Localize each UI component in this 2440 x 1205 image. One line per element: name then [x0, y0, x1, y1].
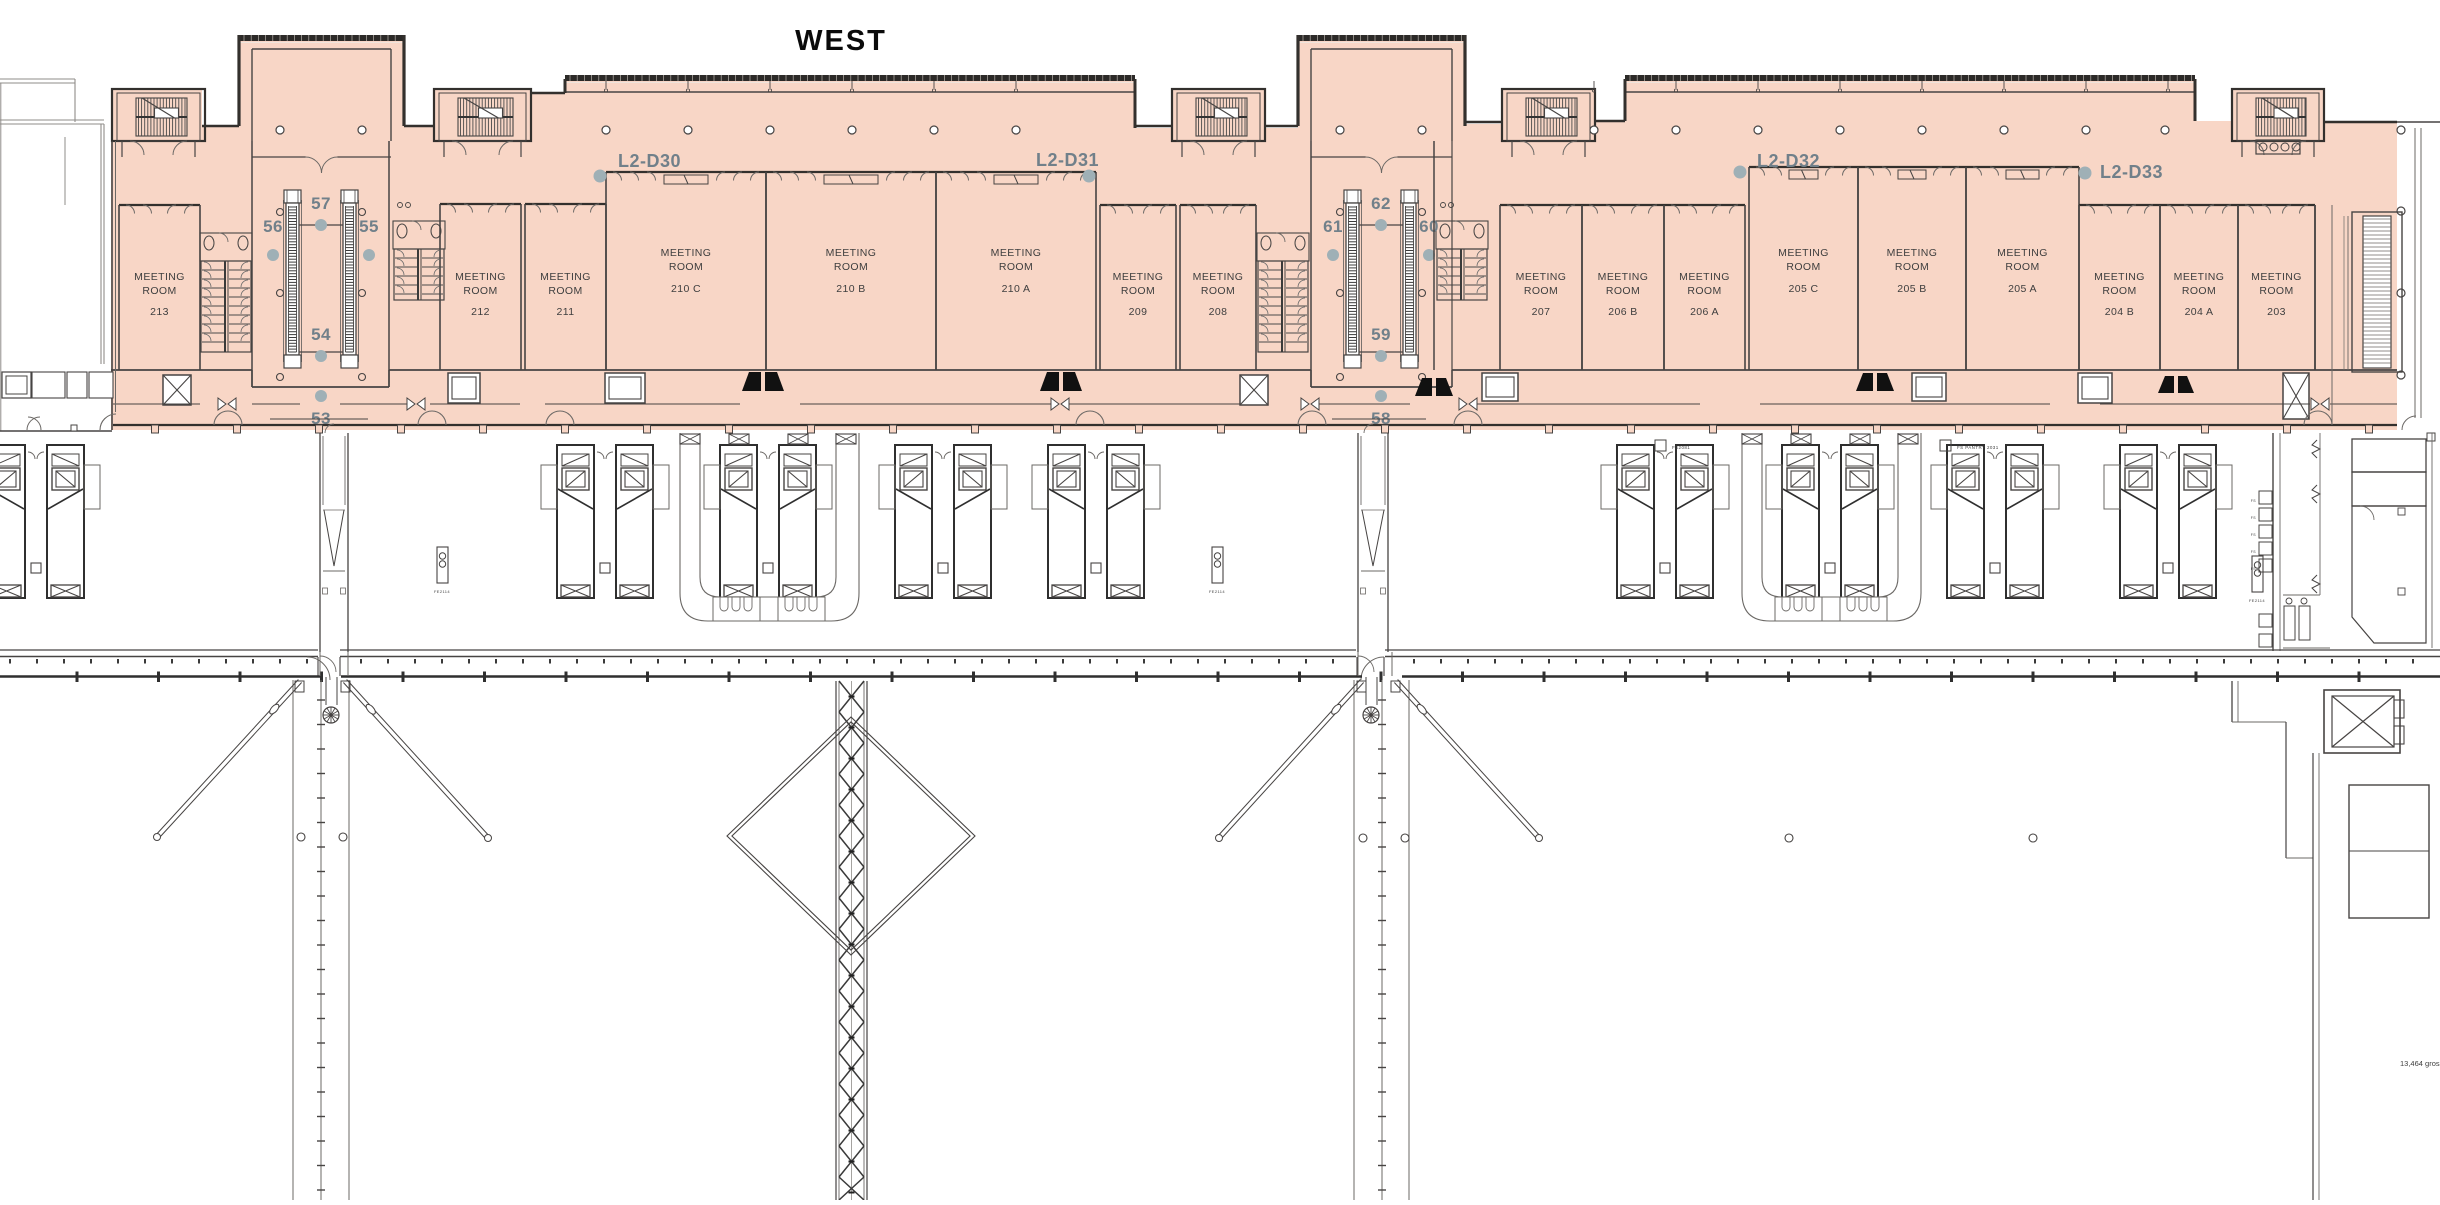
svg-text:MEETING: MEETING: [1516, 271, 1567, 283]
svg-text:MEETING: MEETING: [1598, 271, 1649, 283]
svg-text:ROOM: ROOM: [142, 285, 176, 297]
svg-text:FS: FS: [2251, 550, 2257, 554]
svg-text:MEETING: MEETING: [2094, 271, 2145, 283]
svg-text:213: 213: [150, 306, 169, 318]
svg-text:ROOM: ROOM: [1201, 285, 1235, 297]
svg-text:204 B: 204 B: [2105, 306, 2134, 318]
svg-text:ROOM: ROOM: [2102, 285, 2136, 297]
svg-text:MEETING: MEETING: [134, 271, 185, 283]
svg-text:203: 203: [2267, 306, 2286, 318]
svg-text:ROOM: ROOM: [463, 285, 497, 297]
svg-text:MEETING: MEETING: [1679, 271, 1730, 283]
svg-text:ROOM: ROOM: [1524, 285, 1558, 297]
svg-text:56: 56: [263, 217, 283, 236]
svg-text:210 B: 210 B: [836, 283, 865, 295]
svg-text:ROOM: ROOM: [1786, 261, 1820, 273]
svg-text:FS: FS: [2251, 533, 2257, 537]
svg-text:205 B: 205 B: [1897, 283, 1926, 295]
svg-text:57: 57: [311, 194, 331, 213]
svg-text:204 A: 204 A: [2185, 306, 2214, 318]
svg-text:ROOM: ROOM: [1687, 285, 1721, 297]
svg-text:MEETING: MEETING: [1997, 247, 2048, 259]
svg-text:206 B: 206 B: [1608, 306, 1637, 318]
svg-text:MEETING: MEETING: [1113, 271, 1164, 283]
svg-text:FS2081: FS2081: [1672, 445, 1690, 450]
svg-text:MEETING: MEETING: [1193, 271, 1244, 283]
svg-text:FE2114: FE2114: [434, 589, 450, 594]
svg-text:55: 55: [359, 217, 379, 236]
svg-text:209: 209: [1129, 306, 1148, 318]
svg-text:59: 59: [1371, 325, 1391, 344]
svg-text:13,464 gross s: 13,464 gross s: [2400, 1059, 2440, 1068]
svg-text:MEETING: MEETING: [1778, 247, 1829, 259]
svg-text:FS PANTRY 2031: FS PANTRY 2031: [1957, 445, 1999, 450]
svg-text:MEETING: MEETING: [2251, 271, 2302, 283]
svg-text:210 A: 210 A: [1002, 283, 1031, 295]
svg-text:ROOM: ROOM: [999, 261, 1033, 273]
svg-text:62: 62: [1371, 194, 1391, 213]
svg-text:ROOM: ROOM: [548, 285, 582, 297]
svg-text:61: 61: [1323, 217, 1343, 236]
svg-text:MEETING: MEETING: [2174, 271, 2225, 283]
svg-text:L2-D31: L2-D31: [1036, 150, 1099, 170]
svg-text:MEETING: MEETING: [1887, 247, 1938, 259]
svg-text:208: 208: [1209, 306, 1228, 318]
svg-text:FS: FS: [2251, 516, 2257, 520]
svg-text:ROOM: ROOM: [2182, 285, 2216, 297]
svg-text:54: 54: [311, 325, 331, 344]
svg-text:ROOM: ROOM: [1121, 285, 1155, 297]
svg-text:FS: FS: [2251, 567, 2257, 571]
svg-text:L2-D30: L2-D30: [618, 151, 681, 171]
svg-text:ROOM: ROOM: [834, 261, 868, 273]
svg-text:207: 207: [1532, 306, 1551, 318]
svg-text:206 A: 206 A: [1690, 306, 1719, 318]
svg-text:210 C: 210 C: [671, 283, 701, 295]
svg-text:ROOM: ROOM: [1606, 285, 1640, 297]
svg-text:MEETING: MEETING: [661, 247, 712, 259]
svg-text:ROOM: ROOM: [669, 261, 703, 273]
svg-text:ROOM: ROOM: [2259, 285, 2293, 297]
svg-text:FS: FS: [2251, 499, 2257, 503]
svg-text:WEST: WEST: [795, 25, 887, 57]
svg-text:FE2114: FE2114: [1209, 589, 1225, 594]
svg-text:212: 212: [471, 306, 490, 318]
svg-text:MEETING: MEETING: [991, 247, 1042, 259]
svg-text:ROOM: ROOM: [1895, 261, 1929, 273]
svg-text:FE2114: FE2114: [2249, 598, 2265, 603]
svg-text:L2-D32: L2-D32: [1757, 151, 1820, 171]
svg-text:ROOM: ROOM: [2005, 261, 2039, 273]
svg-text:211: 211: [557, 306, 575, 318]
svg-text:MEETING: MEETING: [540, 271, 591, 283]
svg-text:60: 60: [1419, 217, 1439, 236]
svg-text:MEETING: MEETING: [455, 271, 506, 283]
svg-text:L2-D33: L2-D33: [2100, 162, 2163, 182]
svg-text:205 A: 205 A: [2008, 283, 2037, 295]
svg-text:205 C: 205 C: [1788, 283, 1818, 295]
svg-text:MEETING: MEETING: [826, 247, 877, 259]
